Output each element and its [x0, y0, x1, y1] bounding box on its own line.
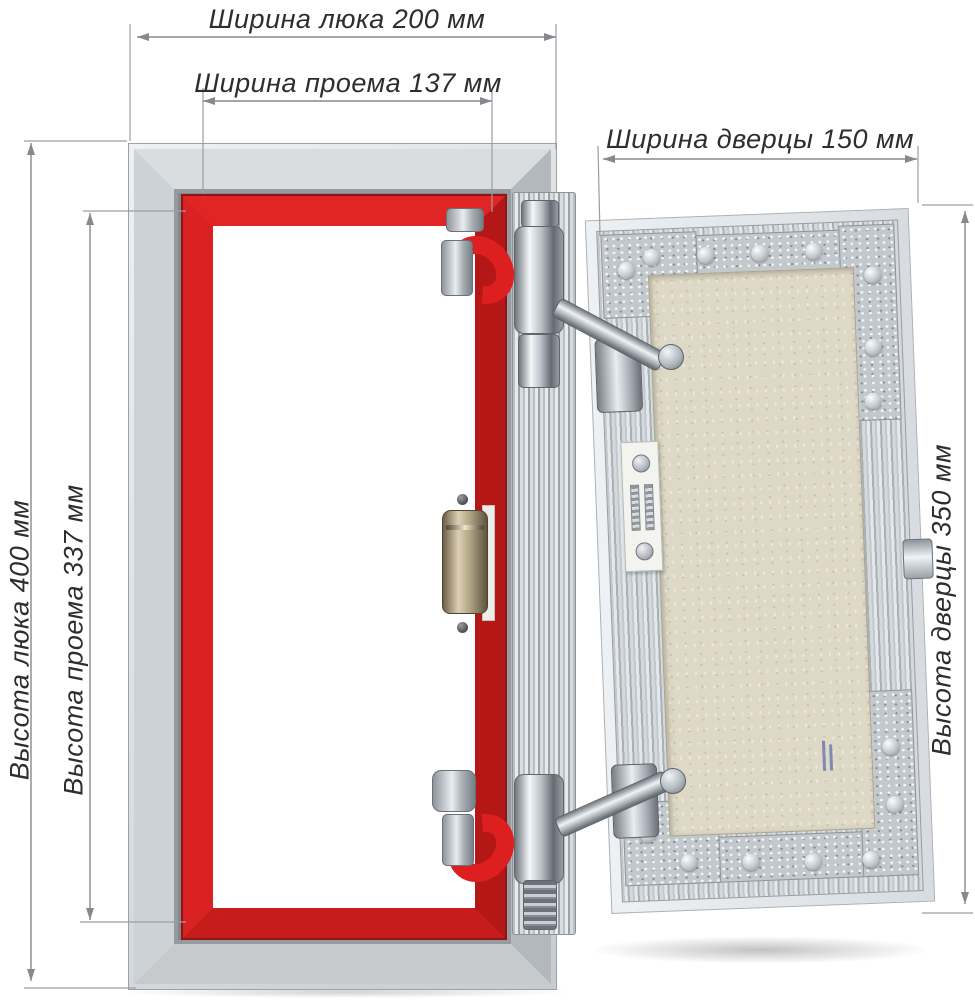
opening-height-label: Высота проема 337 мм: [59, 484, 90, 795]
diagram-canvas: Ширина люка 200 мм Ширина проема 137 мм …: [0, 0, 975, 1000]
hatch-height-label: Высота люка 400 мм: [5, 500, 36, 780]
door-width-label: Ширина дверцы 150 мм: [606, 124, 914, 155]
hatch-width-label: Ширина люка 200 мм: [209, 4, 486, 35]
opening-width-label: Ширина проема 137 мм: [194, 68, 501, 99]
measure-lines: [31, 37, 965, 981]
extension-lines: [24, 24, 973, 988]
door-height-label: Высота дверцы 350 мм: [927, 444, 958, 756]
